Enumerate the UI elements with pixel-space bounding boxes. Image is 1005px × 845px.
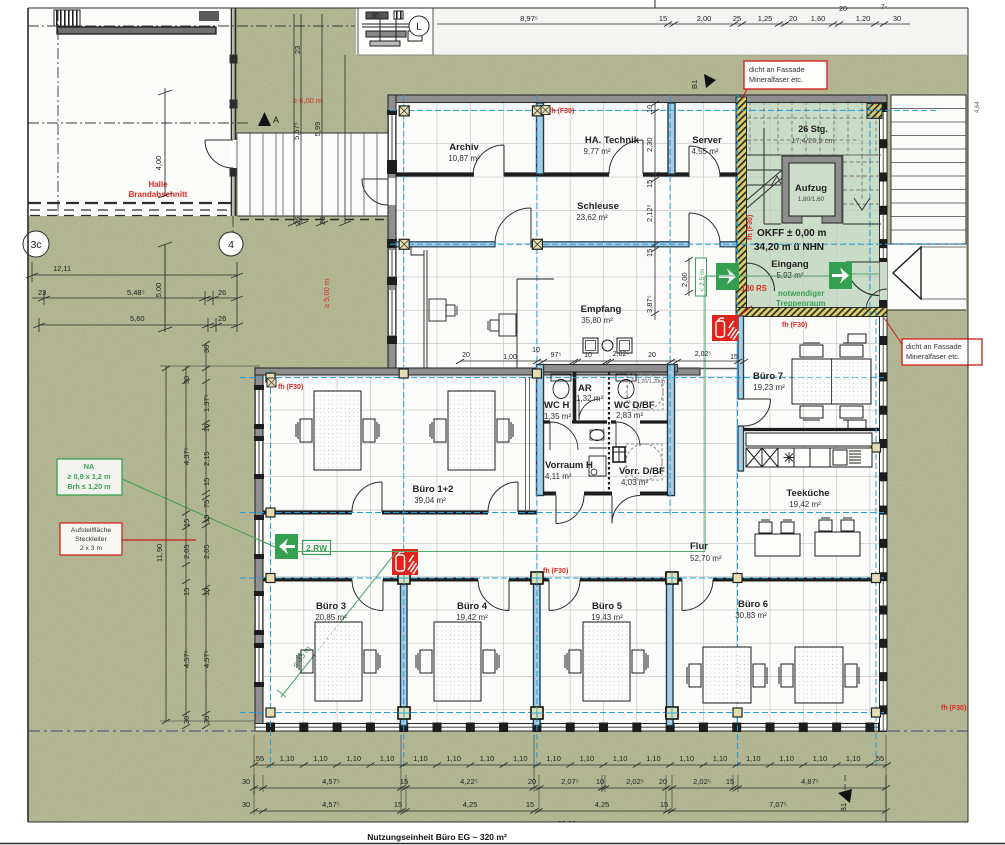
svg-text:Büro 1+2: Büro 1+2 xyxy=(413,484,454,495)
svg-text:9,77 m²: 9,77 m² xyxy=(583,147,610,156)
svg-text:Vorr. D/BF: Vorr. D/BF xyxy=(619,466,665,477)
svg-text:fh (F30): fh (F30) xyxy=(549,108,574,115)
svg-text:30: 30 xyxy=(242,777,250,786)
svg-text:35,80 m²: 35,80 m² xyxy=(581,316,613,325)
svg-text:,55: ,55 xyxy=(874,754,884,763)
svg-text:4,03 m²: 4,03 m² xyxy=(621,478,648,487)
svg-text:AR: AR xyxy=(578,383,592,394)
svg-text:11,90: 11,90 xyxy=(155,544,164,562)
svg-text:15: 15 xyxy=(645,180,654,188)
svg-text:20: 20 xyxy=(528,777,536,786)
svg-text:4,87⁵: 4,87⁵ xyxy=(801,777,819,786)
svg-text:4,64: 4,64 xyxy=(975,101,981,113)
svg-text:26: 26 xyxy=(218,288,226,297)
svg-text:75: 75 xyxy=(202,500,211,508)
svg-text:52,70 m²: 52,70 m² xyxy=(690,554,722,563)
svg-text:20,85 m²: 20,85 m² xyxy=(315,613,347,622)
svg-text:1,10: 1,10 xyxy=(846,754,861,763)
svg-text:2,12⁵: 2,12⁵ xyxy=(645,204,654,222)
svg-text:fh (F30): fh (F30) xyxy=(543,568,568,575)
svg-text:2,30: 2,30 xyxy=(645,137,654,152)
svg-text:1,10: 1,10 xyxy=(313,754,328,763)
svg-text:2,00: 2,00 xyxy=(680,272,689,287)
svg-text:Server: Server xyxy=(692,135,722,146)
svg-text:1,10: 1,10 xyxy=(646,754,661,763)
svg-text:4,57⁵: 4,57⁵ xyxy=(182,650,191,668)
svg-text:4,22⁵: 4,22⁵ xyxy=(460,777,478,786)
svg-text:15: 15 xyxy=(182,588,191,596)
svg-text:20: 20 xyxy=(462,352,470,359)
svg-text:L: L xyxy=(416,22,422,33)
svg-text:1,10: 1,10 xyxy=(280,754,295,763)
svg-text:1,10: 1,10 xyxy=(413,754,428,763)
svg-text:notwendiger: notwendiger xyxy=(778,289,824,298)
svg-text:15: 15 xyxy=(659,14,667,23)
svg-text:1,10: 1,10 xyxy=(346,754,361,763)
svg-text:30: 30 xyxy=(182,376,191,384)
svg-text:Schleuse: Schleuse xyxy=(577,201,619,212)
svg-text:10,87 m²: 10,87 m² xyxy=(448,154,480,163)
svg-text:12,11: 12,11 xyxy=(53,264,71,273)
svg-text:4: 4 xyxy=(228,239,234,251)
svg-text:1,10: 1,10 xyxy=(480,754,495,763)
svg-text:4,57⁵: 4,57⁵ xyxy=(322,777,340,786)
svg-text:130 RS: 130 RS xyxy=(741,284,767,293)
svg-text:2,02⁵: 2,02⁵ xyxy=(693,777,711,786)
svg-text:4,57⁵: 4,57⁵ xyxy=(322,800,340,809)
svg-text:2,02⁵: 2,02⁵ xyxy=(626,777,644,786)
svg-text:20: 20 xyxy=(839,6,847,13)
svg-text:2,05: 2,05 xyxy=(202,544,211,559)
svg-text:Büro 7: Büro 7 xyxy=(753,371,783,382)
svg-text:30: 30 xyxy=(242,800,250,809)
svg-text:20: 20 xyxy=(789,14,797,23)
svg-text:Brh ≤ 1,20 m: Brh ≤ 1,20 m xyxy=(67,482,111,491)
svg-text:3c: 3c xyxy=(30,239,41,251)
svg-text:Eingang: Eingang xyxy=(771,259,809,270)
svg-text:15: 15 xyxy=(645,249,654,257)
svg-text:Nutzungseinheit Büro EG ~ 320: Nutzungseinheit Büro EG ~ 320 m² xyxy=(367,832,507,842)
svg-text:23: 23 xyxy=(293,46,302,54)
svg-text:dicht an Fassade: dicht an Fassade xyxy=(749,65,805,74)
svg-text:10: 10 xyxy=(584,352,592,359)
svg-text:fh (F30): fh (F30) xyxy=(747,215,754,240)
svg-text:7,07⁵: 7,07⁵ xyxy=(769,800,787,809)
svg-text:1,10: 1,10 xyxy=(546,754,561,763)
svg-text:HA. Technik: HA. Technik xyxy=(585,135,640,146)
svg-text:2,02⁵: 2,02⁵ xyxy=(695,351,712,358)
svg-text:Archiv: Archiv xyxy=(449,142,479,153)
svg-text:26: 26 xyxy=(218,314,226,323)
svg-text:≥ 5,00 m: ≥ 5,00 m xyxy=(322,279,331,308)
svg-text:Büro 4: Büro 4 xyxy=(457,601,488,612)
svg-text:1,10: 1,10 xyxy=(779,754,794,763)
svg-text:4,25: 4,25 xyxy=(463,800,478,809)
svg-text:19,23 m²: 19,23 m² xyxy=(753,383,785,392)
svg-text:2,07⁵: 2,07⁵ xyxy=(561,777,579,786)
svg-text:25: 25 xyxy=(733,14,741,23)
svg-text:1,60: 1,60 xyxy=(811,14,826,23)
svg-text:1,32 m²: 1,32 m² xyxy=(576,394,603,403)
svg-text:19,42 m²: 19,42 m² xyxy=(789,500,821,509)
svg-text:20: 20 xyxy=(648,352,656,359)
svg-text:2 x 3 m: 2 x 3 m xyxy=(80,545,103,552)
svg-text:Treppenraum: Treppenraum xyxy=(776,299,825,308)
svg-text:15: 15 xyxy=(182,519,191,527)
svg-text:B1: B1 xyxy=(690,80,699,89)
svg-text:Büro 5: Büro 5 xyxy=(592,601,623,612)
svg-text:15: 15 xyxy=(730,354,738,361)
svg-text:fh (F30): fh (F30) xyxy=(782,322,807,329)
svg-text:30: 30 xyxy=(182,716,191,724)
svg-text:19,42 m²: 19,42 m² xyxy=(456,613,488,622)
svg-text:10: 10 xyxy=(645,105,654,113)
svg-text:5,67⁵: 5,67⁵ xyxy=(292,122,301,140)
svg-text:2,15: 2,15 xyxy=(202,451,211,466)
svg-text:fh (F30): fh (F30) xyxy=(278,384,303,391)
svg-text:1,20/1,20 m: 1,20/1,20 m xyxy=(637,379,666,385)
svg-text:30: 30 xyxy=(893,14,901,23)
svg-text:4,00: 4,00 xyxy=(154,156,163,171)
svg-text:2,02⁵: 2,02⁵ xyxy=(613,351,630,358)
svg-text:17,4/26,5 cm: 17,4/26,5 cm xyxy=(791,136,834,145)
svg-text:39,04 m²: 39,04 m² xyxy=(414,496,446,505)
svg-text:1,10: 1,10 xyxy=(613,754,628,763)
svg-text:dicht an Fassade: dicht an Fassade xyxy=(906,342,962,351)
svg-text:26: 26 xyxy=(293,217,302,225)
svg-text:1,37⁵: 1,37⁵ xyxy=(202,394,211,412)
svg-text:1,25: 1,25 xyxy=(758,14,773,23)
svg-text:30,83 m²: 30,83 m² xyxy=(735,611,767,620)
svg-text:1,10: 1,10 xyxy=(380,754,395,763)
svg-text:Teeküche: Teeküche xyxy=(786,488,829,499)
svg-text:2,83 m²: 2,83 m² xyxy=(616,411,643,420)
svg-text:Aufzug: Aufzug xyxy=(795,183,827,194)
svg-text:≥ 6,00 m: ≥ 6,00 m xyxy=(293,96,322,105)
svg-text:Büro 3: Büro 3 xyxy=(316,601,346,612)
svg-text:23,62 m²: 23,62 m² xyxy=(576,213,608,222)
svg-text:2,05: 2,05 xyxy=(182,544,191,559)
svg-text:1,10: 1,10 xyxy=(713,754,728,763)
svg-text:15: 15 xyxy=(526,800,534,809)
svg-text:30: 30 xyxy=(371,13,379,20)
svg-text:1,80/1,60: 1,80/1,60 xyxy=(798,196,825,203)
svg-text:1,20: 1,20 xyxy=(856,14,871,23)
svg-text:Vorraum H: Vorraum H xyxy=(545,460,593,471)
svg-text:5,48⁵: 5,48⁵ xyxy=(127,288,145,297)
svg-text:8,97⁵: 8,97⁵ xyxy=(520,14,538,23)
svg-text:fh (F30): fh (F30) xyxy=(941,705,966,712)
svg-text:4,25: 4,25 xyxy=(595,800,610,809)
svg-text:≥ 0,9 x 1,2 m: ≥ 0,9 x 1,2 m xyxy=(68,472,111,481)
svg-text:Büro 6: Büro 6 xyxy=(738,599,768,610)
svg-text:4,57⁵: 4,57⁵ xyxy=(202,650,211,668)
svg-text:15: 15 xyxy=(202,515,211,523)
svg-text:4,11 m²: 4,11 m² xyxy=(545,472,572,481)
svg-text:1,10: 1,10 xyxy=(679,754,694,763)
svg-text:1,10: 1,10 xyxy=(513,754,528,763)
svg-text:1,10: 1,10 xyxy=(746,754,761,763)
svg-text:Mineralfaser etc.: Mineralfaser etc. xyxy=(906,352,960,361)
svg-text:Empfang: Empfang xyxy=(581,304,622,315)
svg-text:Mineralfaser etc.: Mineralfaser etc. xyxy=(749,75,803,84)
svg-text:10: 10 xyxy=(532,347,540,354)
svg-text:15: 15 xyxy=(660,800,668,809)
svg-text:Steckleiter: Steckleiter xyxy=(75,536,107,543)
svg-text:Aufstellfläche: Aufstellfläche xyxy=(71,527,112,534)
svg-text:26 Stg.: 26 Stg. xyxy=(798,124,828,134)
svg-text:3,87⁵: 3,87⁵ xyxy=(645,295,654,313)
svg-text:23: 23 xyxy=(38,288,46,297)
svg-text:1,10: 1,10 xyxy=(446,754,461,763)
svg-text:10: 10 xyxy=(202,424,211,432)
svg-text:26: 26 xyxy=(318,217,327,225)
svg-text:OKFF ± 0,00 m: OKFF ± 0,00 m xyxy=(757,228,827,239)
svg-text:15: 15 xyxy=(202,478,211,486)
svg-text:WC H: WC H xyxy=(544,400,569,411)
svg-text:1,10: 1,10 xyxy=(580,754,595,763)
svg-text:A: A xyxy=(273,115,279,125)
svg-text:30: 30 xyxy=(202,345,211,353)
svg-text:5,00: 5,00 xyxy=(154,283,163,298)
svg-text:97⁵: 97⁵ xyxy=(551,352,562,359)
svg-text:1,35 m²: 1,35 m² xyxy=(544,412,571,421)
svg-text:4,37⁵: 4,37⁵ xyxy=(182,447,191,465)
svg-text:Flur: Flur xyxy=(690,541,708,552)
svg-text:NA: NA xyxy=(84,462,95,471)
svg-text:2,00: 2,00 xyxy=(697,14,712,23)
svg-text:4,55 m²: 4,55 m² xyxy=(691,147,718,156)
svg-text:1,10: 1,10 xyxy=(813,754,828,763)
svg-text:WC D/BF: WC D/BF xyxy=(614,400,655,411)
svg-text:30: 30 xyxy=(202,716,211,724)
svg-text:5,60: 5,60 xyxy=(130,314,145,323)
svg-text:,55: ,55 xyxy=(254,754,264,763)
svg-text:15: 15 xyxy=(202,588,211,596)
svg-text:19,43 m²: 19,43 m² xyxy=(591,613,623,622)
svg-text:10: 10 xyxy=(596,777,604,786)
svg-text:5,99: 5,99 xyxy=(313,122,322,137)
svg-text:34,20 m ü NHN: 34,20 m ü NHN xyxy=(754,242,824,253)
svg-text:1,00: 1,00 xyxy=(503,354,517,361)
